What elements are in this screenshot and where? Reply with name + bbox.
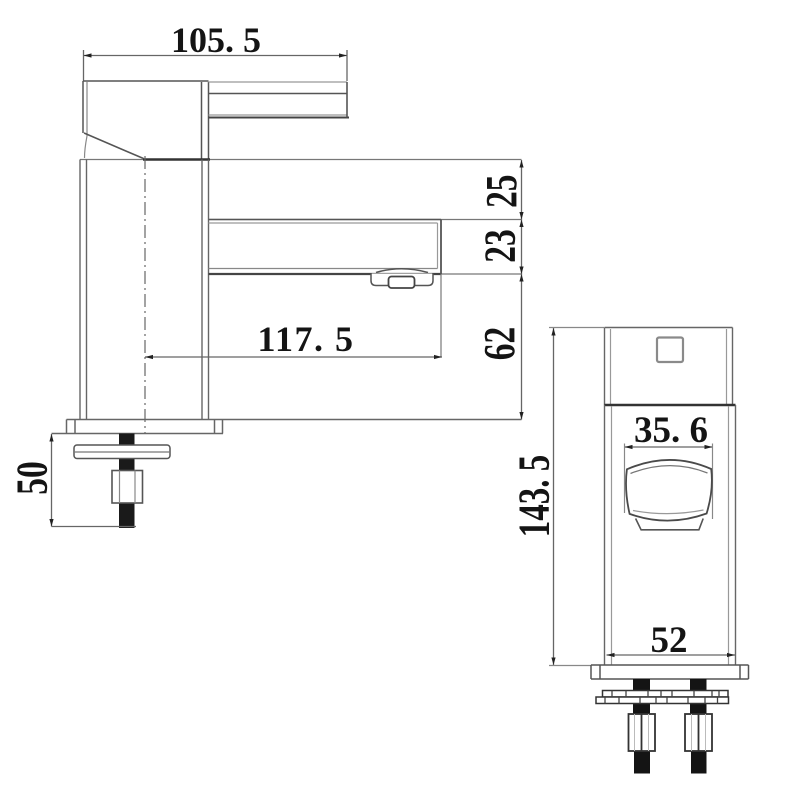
svg-text:117. 5: 117. 5 [257,319,354,359]
svg-text:62: 62 [476,327,524,360]
svg-text:105. 5: 105. 5 [171,20,261,60]
svg-text:35. 6: 35. 6 [634,410,708,451]
svg-text:25: 25 [478,174,526,207]
svg-text:23: 23 [476,229,524,262]
svg-text:143. 5: 143. 5 [510,455,559,537]
svg-text:50: 50 [8,461,56,494]
